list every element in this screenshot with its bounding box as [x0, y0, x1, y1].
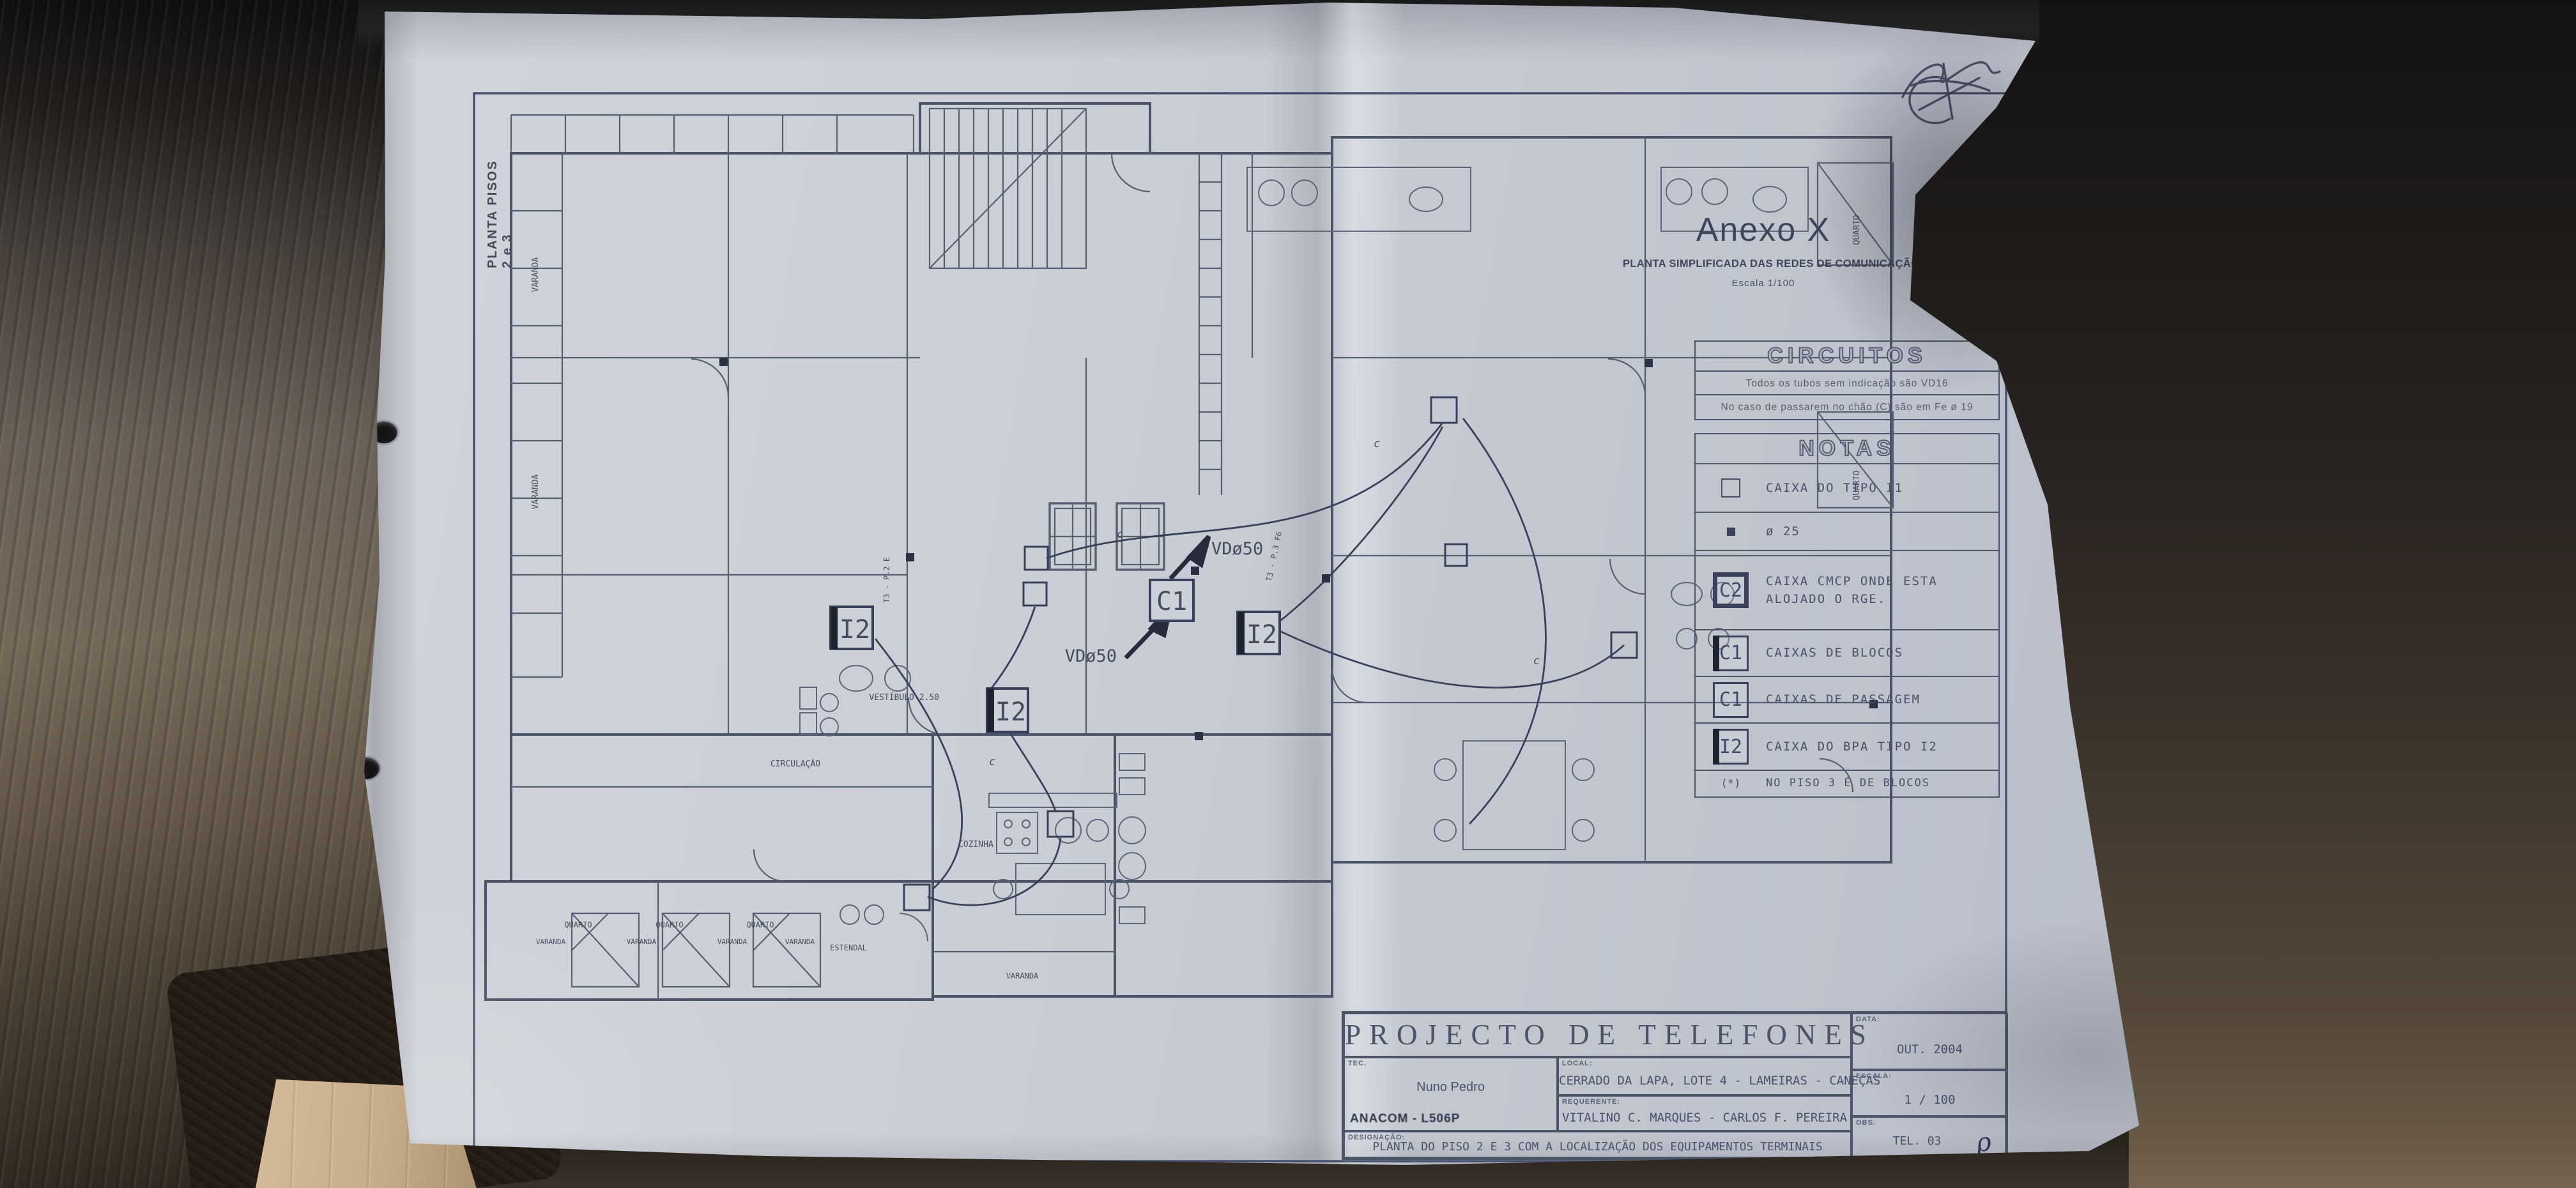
- requerente-label: REQUERENTE:: [1562, 1098, 1620, 1106]
- requerente-cell: REQUERENTE: VITALINO C. MARQUES - CARLOS…: [1558, 1095, 1851, 1131]
- notas-row: C1 CAIXAS DE BLOCOS: [1696, 630, 1998, 677]
- vd50-label: VDø50: [1065, 646, 1117, 666]
- square-outline-icon: [1721, 478, 1740, 498]
- sheet-title: Anexo X: [1623, 211, 1904, 249]
- room-label: QUARTO: [746, 920, 774, 929]
- room-label: VARANDA: [536, 938, 566, 946]
- circuit-letter: c: [1533, 655, 1540, 667]
- room-label: VARANDA: [717, 938, 747, 946]
- room-labels: VARANDA VARANDA CIRCULAÇÃO VESTÍBULO 2.5…: [531, 215, 1862, 980]
- local-value: CERRADO DA LAPA, LOTE 4 - LAMEIRAS - CAN…: [1559, 1074, 1850, 1088]
- asterisk-note-icon: (*): [1696, 777, 1766, 790]
- notas-row-text: NO PISO 3 É DE BLOCOS: [1766, 775, 1930, 792]
- photo-stage: C1 I2 I2 I2 VARANDA VARANDA CIRCUL: [0, 0, 2576, 1188]
- notas-row: C1 CAIXAS DE PASSAGEM: [1696, 677, 1998, 724]
- badge-i2-mid-label: I2: [995, 697, 1026, 727]
- room-label: COZINHA: [958, 840, 993, 849]
- notas-box: NOTAS CAIXA DO TIPO I1 ø 25 C2 CAIXA CMC…: [1694, 433, 2000, 798]
- i2-badge-icon: I2: [1713, 729, 1749, 765]
- notas-row-text: CAIXA DO TIPO I1: [1766, 479, 1903, 498]
- apartment-label: T3 - P.3 F6: [1264, 531, 1284, 583]
- project-title-cell: PROJECTO DE TELEFONES: [1344, 1013, 1851, 1057]
- notas-title: NOTAS: [1696, 434, 1998, 464]
- badge-i2-left-label: I2: [839, 615, 870, 644]
- circuit-letter: c: [989, 756, 995, 768]
- technician-cell: TEC. Nuno Pedro ANACOM - L506P: [1344, 1057, 1558, 1131]
- circuit-letter: c: [1374, 438, 1380, 450]
- square-filled-icon: [1727, 528, 1735, 536]
- obs-cell: OBS. TEL. 03 ρ: [1851, 1116, 2008, 1158]
- badge-i2-left: I2: [831, 607, 873, 649]
- sheet-header: Anexo X PLANTA SIMPLIFICADA DAS REDES DE…: [1623, 211, 1904, 289]
- notas-row: ø 25: [1696, 513, 1998, 551]
- designacao-cell: DESIGNAÇÃO: PLANTA DO PISO 2 E 3 COM A L…: [1344, 1131, 1851, 1158]
- technician-ref: ANACOM - L506P: [1350, 1112, 1484, 1126]
- designacao-value: PLANTA DO PISO 2 E 3 COM A LOCALIZAÇÃO D…: [1345, 1140, 1850, 1154]
- circuitos-box: CIRCUITOS Todos os tubos sem indicação s…: [1694, 340, 2000, 420]
- badge-i2-right-label: I2: [1246, 620, 1277, 650]
- escala-value: 1 / 100: [1853, 1093, 2007, 1107]
- room-label: VARANDA: [1006, 971, 1039, 980]
- badge-i2-right: I2: [1238, 612, 1280, 654]
- badge-c1: C1: [1150, 580, 1193, 621]
- notas-row-text: ø 25: [1766, 522, 1800, 541]
- room-label: CIRCULAÇÃO: [770, 759, 820, 769]
- vd50-label: VDø50: [1211, 539, 1263, 559]
- c2-badge-icon: C2: [1713, 572, 1749, 608]
- apartment-label: T3 - P.2 E: [882, 557, 891, 603]
- notas-row: I2 CAIXA DO BPA TIPO I2: [1696, 724, 1998, 771]
- local-cell: LOCAL: CERRADO DA LAPA, LOTE 4 - LAMEIRA…: [1558, 1057, 1851, 1095]
- escala-cell: ESCALA: 1 / 100: [1851, 1070, 2008, 1116]
- room-label: VARANDA: [531, 474, 540, 509]
- circuitos-line-1: Todos os tubos sem indicação são VD16: [1696, 372, 1998, 395]
- notas-row: (*) NO PISO 3 É DE BLOCOS: [1696, 771, 1998, 796]
- room-label: QUARTO: [564, 920, 592, 929]
- badge-c1-label: C1: [1156, 587, 1187, 616]
- notas-row-text: CAIXA CMCP ONDE ESTA ALOJADO O RGE.: [1766, 572, 1938, 609]
- notas-row: CAIXA DO TIPO I1: [1696, 464, 1998, 513]
- sheet-side-label: PLANTA PISOS 2 e 3: [486, 160, 511, 268]
- room-label: VARANDA: [531, 257, 540, 292]
- date-label: DATA:: [1856, 1016, 1880, 1023]
- badge-i2-mid: I2: [987, 689, 1028, 732]
- notas-row-text: CAIXA DO BPA TIPO I2: [1766, 738, 1938, 756]
- circuitos-title: CIRCUITOS: [1696, 342, 1998, 372]
- circuit-letter: c: [1117, 528, 1123, 541]
- room-label: QUARTO: [655, 920, 683, 929]
- c1-blocks-badge-icon: C1: [1713, 636, 1749, 671]
- title-block: PROJECTO DE TELEFONES DATA: OUT. 2004 TE…: [1342, 1011, 2007, 1160]
- obs-label: OBS.: [1856, 1119, 1876, 1127]
- project-title: PROJECTO DE TELEFONES: [1345, 1014, 1850, 1055]
- requerente-value: VITALINO C. MARQUES - CARLOS F. PEREIRA: [1559, 1111, 1850, 1125]
- notas-row-text: CAIXAS DE BLOCOS: [1766, 644, 1903, 662]
- notas-row-text: CAIXAS DE PASSAGEM: [1766, 690, 1920, 709]
- date-cell: DATA: OUT. 2004: [1851, 1013, 2008, 1070]
- sheet-subtitle: PLANTA SIMPLIFICADA DAS REDES DE COMUNIC…: [1623, 258, 1904, 270]
- staircase: [930, 109, 1086, 268]
- technician-name: Nuno Pedro: [1345, 1080, 1556, 1095]
- room-label: VARANDA: [785, 938, 815, 946]
- c1-passage-badge-icon: C1: [1713, 682, 1749, 718]
- circuitos-line-2: No caso de passarem no chão (C) são em F…: [1696, 395, 1998, 419]
- local-label: LOCAL:: [1562, 1060, 1593, 1067]
- notas-row: C2 CAIXA CMCP ONDE ESTA ALOJADO O RGE.: [1696, 551, 1998, 630]
- room-label: VESTÍBULO 2.50: [869, 692, 939, 703]
- sheet-scale: Escala 1/100: [1623, 278, 1904, 289]
- technician-label: TEC.: [1348, 1060, 1367, 1067]
- escala-label: ESCALA:: [1856, 1072, 1892, 1080]
- date-value: OUT. 2004: [1853, 1042, 2007, 1056]
- room-label: VARANDA: [627, 938, 657, 946]
- circuit-tubes: [875, 418, 1624, 905]
- room-label: ESTENDAL: [830, 943, 867, 952]
